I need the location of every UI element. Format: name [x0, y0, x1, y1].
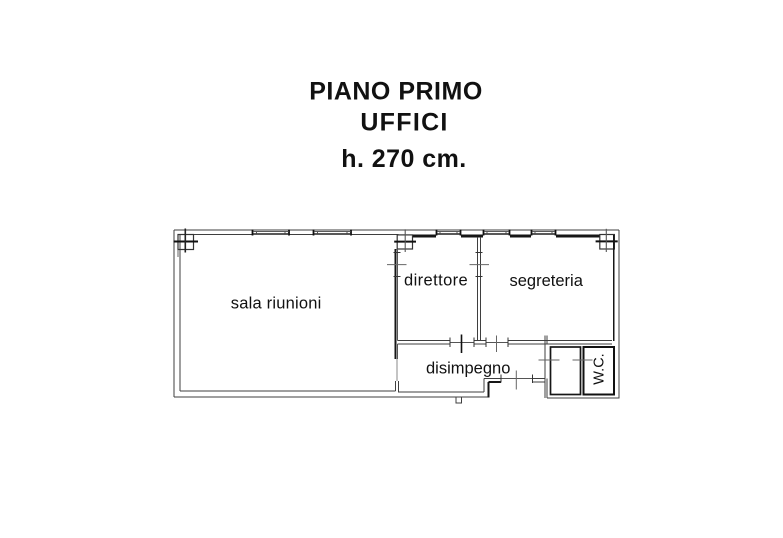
svg-text:W.C.: W.C. [592, 353, 608, 384]
svg-text:UFFICI: UFFICI [360, 109, 448, 137]
svg-text:segreteria: segreteria [510, 272, 584, 290]
svg-text:h. 270 cm.: h. 270 cm. [341, 145, 466, 173]
svg-text:sala riunioni: sala riunioni [231, 295, 322, 313]
svg-text:PIANO PRIMO: PIANO PRIMO [309, 78, 483, 106]
svg-text:disimpegno: disimpegno [426, 360, 510, 378]
svg-text:direttore: direttore [404, 272, 468, 290]
